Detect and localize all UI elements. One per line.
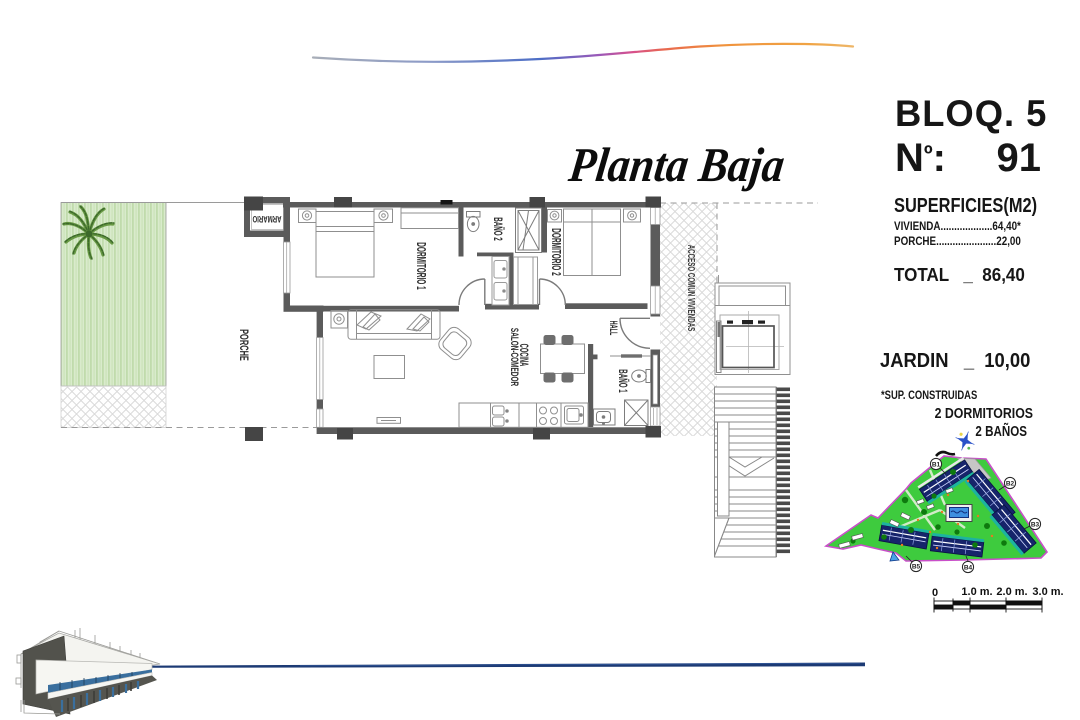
svg-text:BAÑO 1: BAÑO 1 <box>617 369 629 392</box>
svg-text:0: 0 <box>932 587 938 599</box>
svg-text:B4: B4 <box>964 565 973 572</box>
svg-text:DORMITORIO 2: DORMITORIO 2 <box>548 228 562 276</box>
svg-text:B2: B2 <box>1006 481 1015 488</box>
svg-text:PORCHE: PORCHE <box>236 329 249 361</box>
svg-text:1.0 m.: 1.0 m. <box>961 586 992 598</box>
svg-text:B1: B1 <box>932 462 941 469</box>
svg-text:B3: B3 <box>1031 522 1040 529</box>
svg-text:ARMARIO: ARMARIO <box>252 214 281 225</box>
svg-text:B5: B5 <box>912 564 921 571</box>
svg-text:2.0 m.: 2.0 m. <box>996 586 1027 598</box>
svg-text:ACCESO COMUN VIVIENDAS: ACCESO COMUN VIVIENDAS <box>686 245 698 332</box>
svg-text:DORMITORIO 1: DORMITORIO 1 <box>413 242 427 290</box>
svg-text:BAÑO 2: BAÑO 2 <box>490 217 504 241</box>
svg-text:HALL: HALL <box>607 321 620 336</box>
svg-text:COCINA: COCINA <box>517 344 530 367</box>
svg-text:3.0 m.: 3.0 m. <box>1032 586 1063 598</box>
